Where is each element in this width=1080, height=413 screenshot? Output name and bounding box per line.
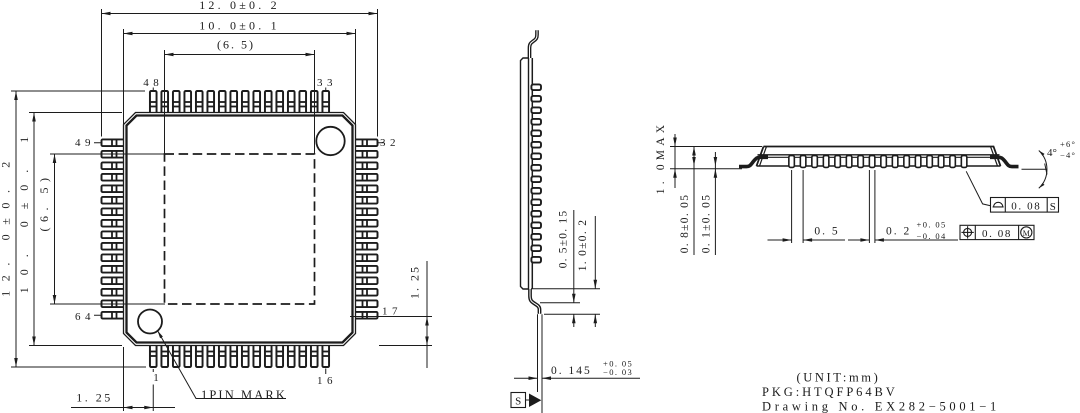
- svg-text:1. 0MAX: 1. 0MAX: [655, 121, 667, 195]
- svg-text:12. 0±0. 2: 12. 0±0. 2: [0, 152, 13, 297]
- svg-text:Drawing No. EX282−5001−1: Drawing No. EX282−5001−1: [762, 400, 1000, 413]
- svg-text:4°: 4°: [1047, 147, 1057, 159]
- svg-text:0. 145: 0. 145: [551, 365, 592, 377]
- svg-text:0. 8±0. 05: 0. 8±0. 05: [679, 194, 691, 254]
- svg-text:48: 48: [143, 77, 163, 89]
- svg-text:(UNIT:mm): (UNIT:mm): [797, 371, 881, 385]
- svg-text:0. 1±0. 05: 0. 1±0. 05: [701, 194, 713, 254]
- svg-text:16: 16: [317, 375, 337, 387]
- svg-text:M: M: [1023, 229, 1030, 238]
- svg-text:1: 1: [153, 372, 159, 384]
- svg-text:10. 0±0. 1: 10. 0±0. 1: [199, 19, 280, 33]
- svg-text:(6. 5): (6. 5): [217, 38, 255, 52]
- svg-text:0. 5: 0. 5: [814, 226, 839, 238]
- svg-text:1PIN MARK: 1PIN MARK: [201, 388, 287, 402]
- svg-text:64: 64: [75, 311, 95, 323]
- svg-text:1. 25: 1. 25: [408, 265, 422, 299]
- svg-text:0. 5±0. 15: 0. 5±0. 15: [557, 210, 569, 269]
- svg-text:10. 0±0. 1: 10. 0±0. 1: [17, 125, 31, 294]
- svg-text:+0. 05: +0. 05: [917, 220, 947, 230]
- svg-text:33: 33: [317, 77, 337, 89]
- svg-text:S: S: [515, 396, 521, 408]
- svg-text:S: S: [1050, 201, 1056, 213]
- svg-text:1. 0±0. 2: 1. 0±0. 2: [577, 219, 589, 272]
- svg-text:0. 08: 0. 08: [982, 228, 1012, 240]
- svg-text:−4°: −4°: [1060, 150, 1076, 160]
- svg-text:(6. 5): (6. 5): [37, 173, 51, 232]
- svg-text:−0. 04: −0. 04: [917, 231, 947, 241]
- svg-text:0. 2: 0. 2: [886, 226, 911, 238]
- svg-text:−0. 03: −0. 03: [603, 367, 633, 377]
- svg-text:0. 08: 0. 08: [1011, 201, 1041, 213]
- svg-text:49: 49: [75, 137, 95, 149]
- svg-text:1. 25: 1. 25: [76, 391, 113, 405]
- svg-text:17: 17: [382, 306, 402, 318]
- svg-text:12. 0±0. 2: 12. 0±0. 2: [199, 0, 280, 12]
- svg-text:PKG:HTQFP64BV: PKG:HTQFP64BV: [762, 385, 898, 399]
- svg-text:+6°: +6°: [1060, 139, 1076, 149]
